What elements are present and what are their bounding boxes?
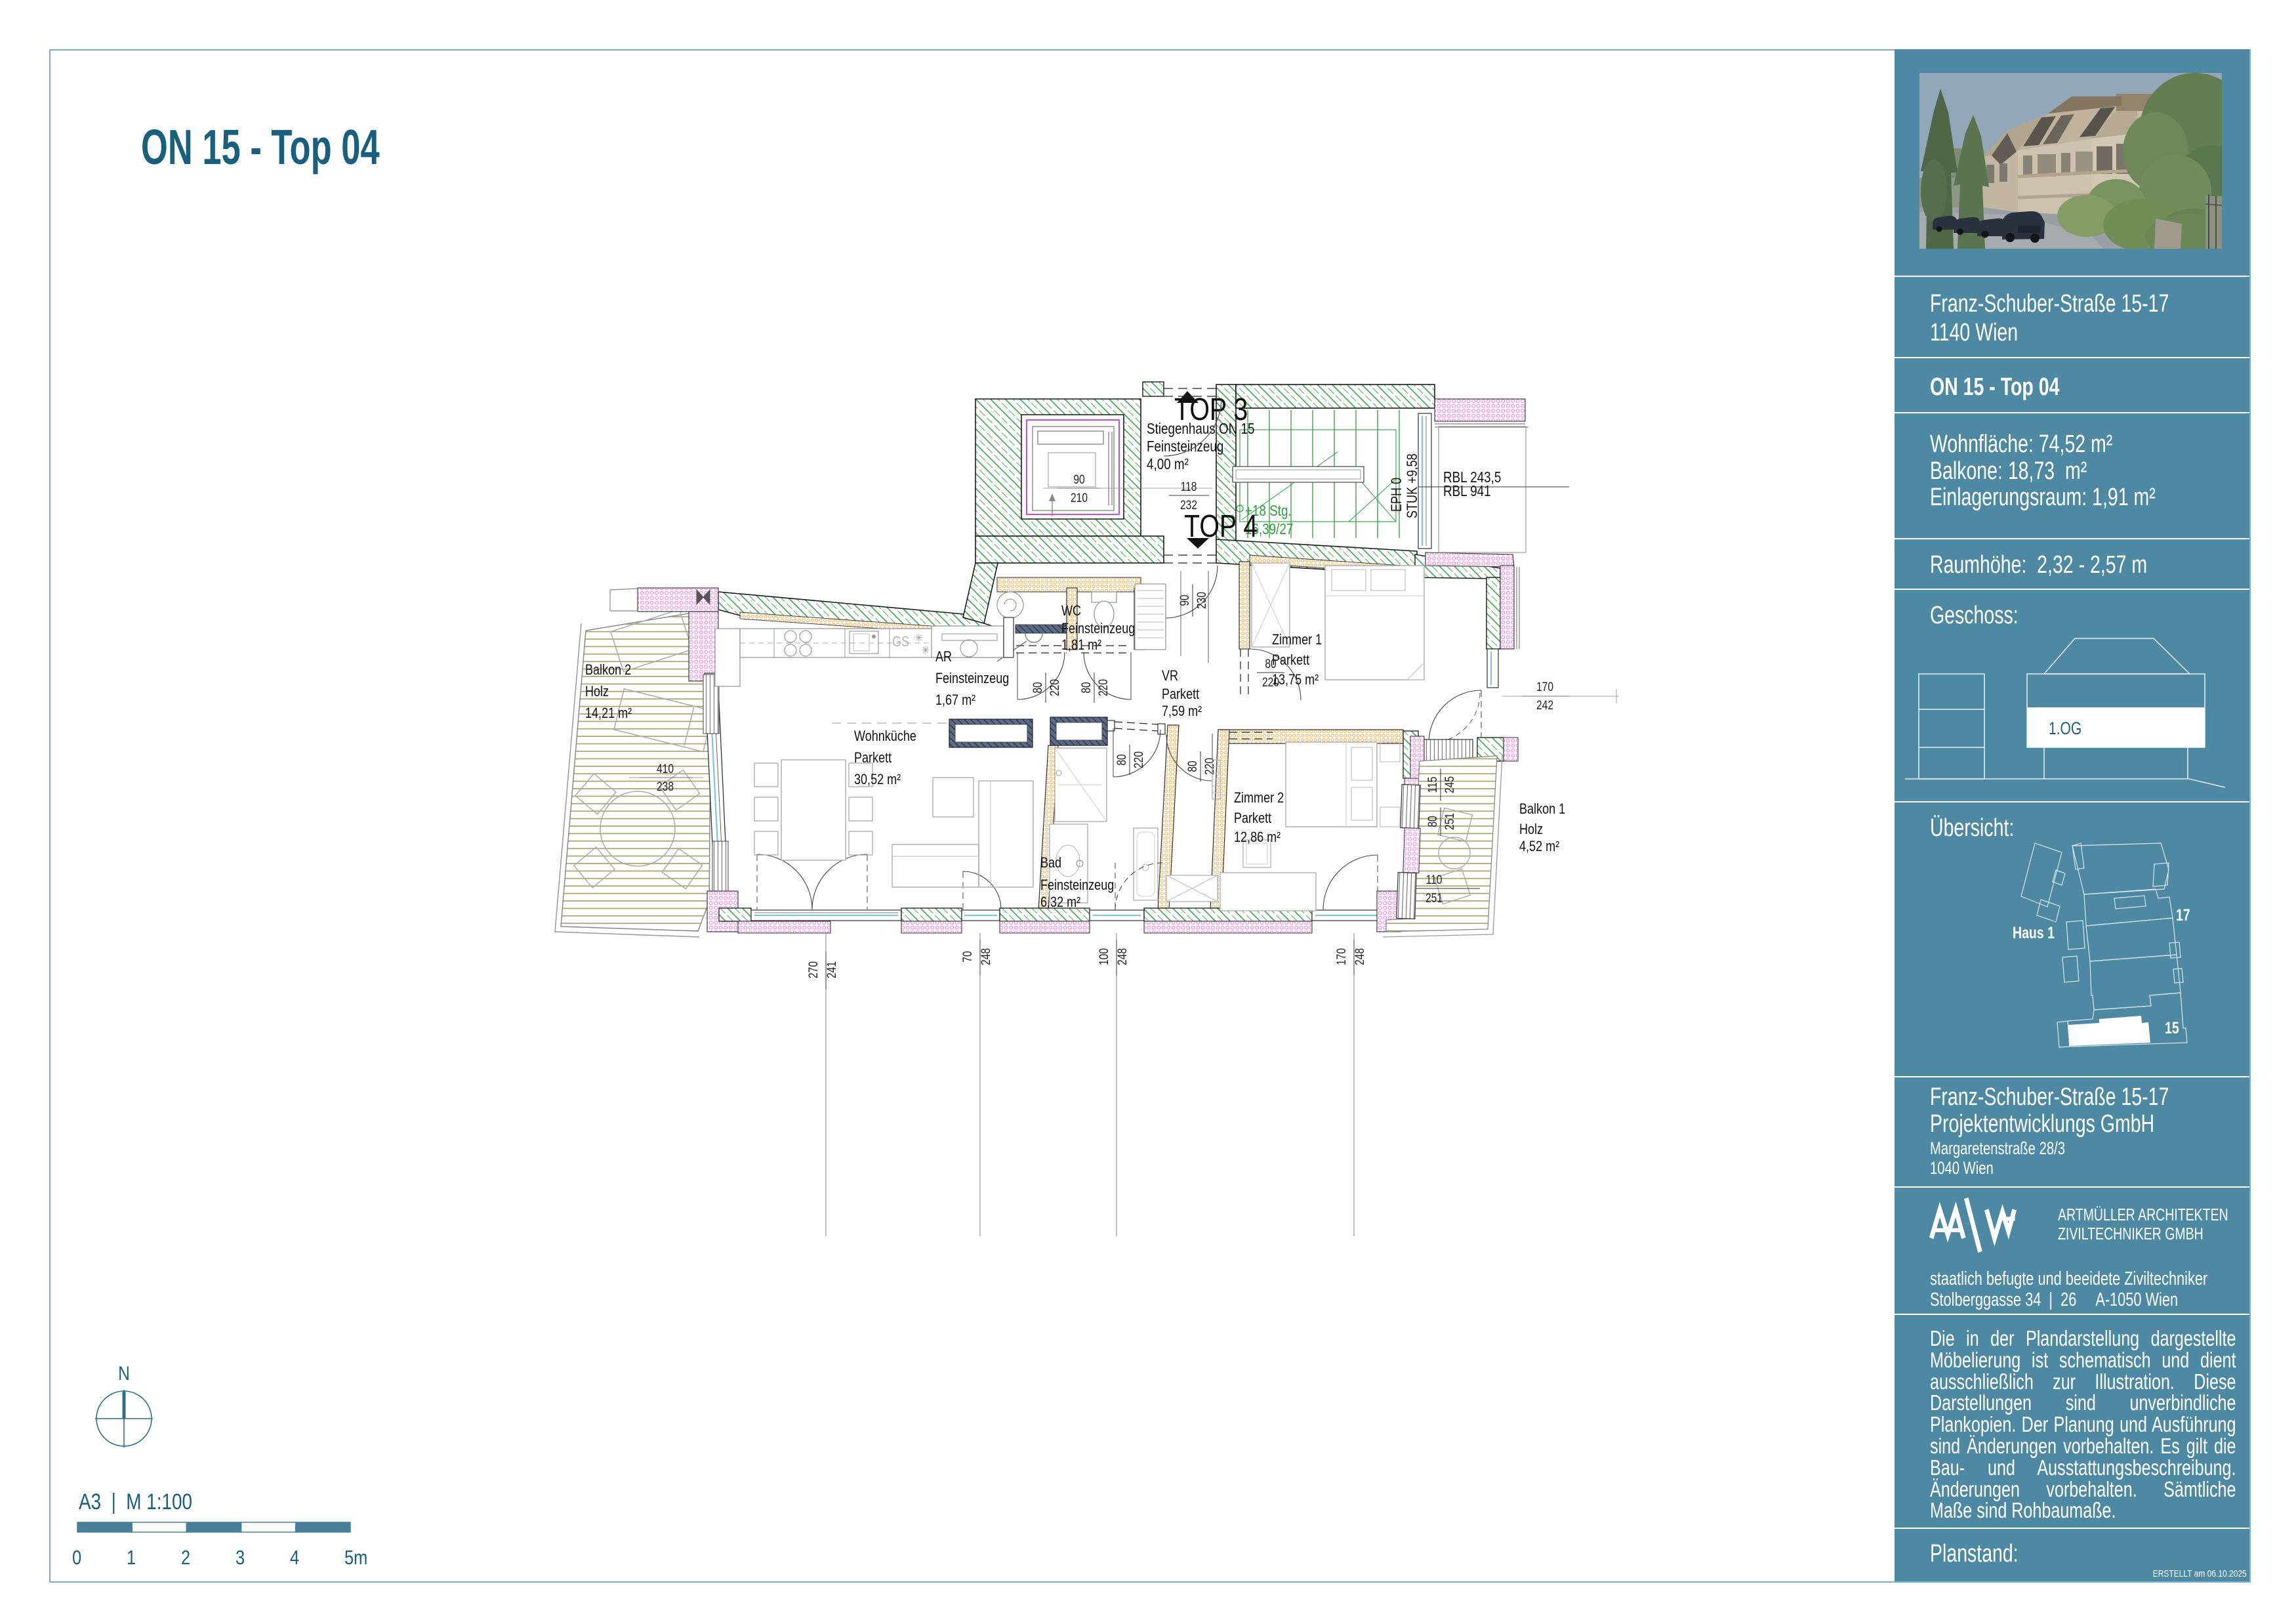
svg-text:AR: AR	[935, 649, 952, 665]
svg-text:2: 2	[181, 1547, 190, 1570]
svg-text:Parkett: Parkett	[1162, 686, 1199, 702]
svg-text:Balkon 2: Balkon 2	[585, 662, 631, 678]
svg-text:GS: GS	[892, 634, 909, 650]
svg-text:✳: ✳	[915, 633, 923, 645]
svg-text:3: 3	[236, 1547, 245, 1570]
svg-text:Bad: Bad	[1040, 855, 1061, 871]
svg-text:0: 0	[72, 1547, 81, 1570]
svg-text:5m: 5m	[344, 1547, 367, 1570]
svg-text:6,32 m²: 6,32 m²	[1040, 894, 1080, 910]
svg-text:241: 241	[825, 961, 839, 978]
svg-text:220: 220	[1132, 751, 1146, 768]
svg-text:110: 110	[1426, 873, 1443, 887]
svg-text:220: 220	[1096, 679, 1111, 696]
svg-text:12,86 m²: 12,86 m²	[1234, 829, 1281, 845]
svg-text:4,52 m²: 4,52 m²	[1519, 839, 1559, 854]
svg-text:Parkett: Parkett	[854, 750, 892, 766]
svg-text:7,59 m²: 7,59 m²	[1162, 703, 1202, 719]
svg-text:EPH 0: EPH 0	[1389, 478, 1404, 512]
svg-text:80: 80	[1115, 754, 1129, 765]
svg-text:4: 4	[290, 1547, 299, 1570]
svg-text:Zimmer 1: Zimmer 1	[1272, 632, 1322, 648]
svg-text:220: 220	[1048, 679, 1062, 696]
svg-text:Holz: Holz	[585, 684, 609, 699]
svg-text:270: 270	[806, 961, 821, 978]
svg-text:Feinsteinzeug: Feinsteinzeug	[935, 671, 1009, 686]
svg-text:Zimmer 2: Zimmer 2	[1234, 790, 1284, 806]
svg-text:A3 | M 1:100: A3 | M 1:100	[79, 1489, 192, 1514]
svg-text:118: 118	[1181, 480, 1197, 494]
svg-text:251: 251	[1443, 813, 1457, 830]
svg-text:90: 90	[1073, 472, 1084, 487]
svg-text:4,00 m²: 4,00 m²	[1147, 456, 1189, 472]
svg-text:238: 238	[657, 780, 674, 794]
svg-text:230: 230	[1195, 592, 1209, 609]
svg-text:VR: VR	[1162, 668, 1178, 684]
svg-text:Balkon 1: Balkon 1	[1519, 801, 1565, 817]
svg-text:251: 251	[1425, 891, 1443, 906]
svg-text:70: 70	[960, 951, 975, 962]
svg-text:170: 170	[1334, 948, 1349, 965]
svg-text:232: 232	[1180, 498, 1197, 512]
svg-text:210: 210	[1071, 491, 1088, 505]
svg-text:Parkett: Parkett	[1234, 810, 1271, 826]
svg-text:248: 248	[979, 948, 993, 965]
svg-text:RBL 941: RBL 941	[1443, 483, 1491, 499]
svg-text:1,81 m²: 1,81 m²	[1061, 637, 1101, 653]
svg-text:Parkett: Parkett	[1272, 652, 1309, 668]
svg-text:80: 80	[1185, 760, 1200, 772]
svg-text:248: 248	[1353, 948, 1367, 965]
svg-text:410: 410	[657, 762, 674, 776]
svg-text:Wohnküche: Wohnküche	[854, 728, 916, 744]
svg-text:✳: ✳	[922, 645, 930, 657]
svg-text:Feinsteinzeug: Feinsteinzeug	[1147, 438, 1223, 455]
svg-text:WC: WC	[1061, 603, 1081, 619]
svg-text:Feinsteinzeug: Feinsteinzeug	[1040, 877, 1114, 893]
svg-text:80: 80	[1425, 816, 1440, 827]
svg-text:Holz: Holz	[1519, 822, 1543, 837]
svg-text:14,21 m²: 14,21 m²	[585, 705, 632, 721]
svg-text:170: 170	[1536, 680, 1553, 694]
svg-text:80: 80	[1079, 682, 1094, 693]
svg-text:STUK +9,58: STUK +9,58	[1404, 453, 1420, 518]
svg-text:1,67 m²: 1,67 m²	[935, 692, 975, 708]
svg-text:245: 245	[1443, 776, 1457, 793]
svg-text:100: 100	[1097, 948, 1111, 965]
svg-text:80: 80	[1031, 682, 1045, 693]
svg-text:90: 90	[1178, 594, 1192, 606]
svg-text:13,75 m²: 13,75 m²	[1272, 672, 1319, 688]
svg-text:1: 1	[127, 1547, 136, 1570]
svg-text:248: 248	[1115, 948, 1130, 965]
svg-text:Stiegenhaus ON 15: Stiegenhaus ON 15	[1147, 421, 1254, 437]
svg-text:242: 242	[1536, 698, 1553, 713]
svg-text:N: N	[118, 1362, 130, 1385]
svg-text:30,52 m²: 30,52 m²	[854, 772, 901, 787]
svg-text:115: 115	[1425, 777, 1440, 793]
svg-text:Feinsteinzeug: Feinsteinzeug	[1061, 621, 1135, 636]
